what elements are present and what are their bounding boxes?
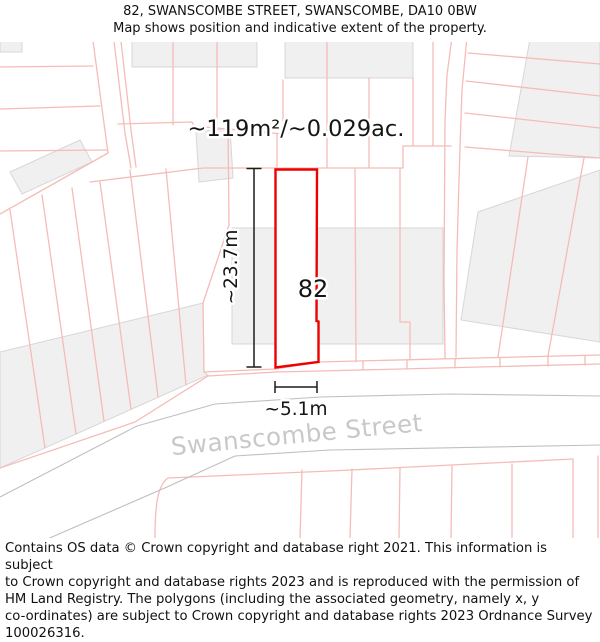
subject-plot-outline: [276, 170, 319, 368]
terrace-row-center: [232, 228, 443, 344]
page-title: 82, SWANSCOMBE STREET, SWANSCOMBE, DA10 …: [0, 0, 600, 20]
copyright-line: 100026316.: [5, 625, 597, 642]
copyright-line: HM Land Registry. The polygons (includin…: [5, 591, 597, 608]
width-dimension: [275, 381, 317, 393]
height-dimension-label: ~23.7m: [221, 230, 242, 305]
plot-number-label: 82: [298, 275, 329, 303]
copyright-line: to Crown copyright and database rights 2…: [5, 574, 597, 591]
terrace-block-ne: [509, 41, 600, 158]
width-dimension-label: ~5.1m: [265, 399, 328, 420]
map-canvas: ~119m²/~0.029ac. 82 ~23.7m ~5.1m Swansco…: [0, 41, 600, 538]
page-subtitle: Map shows position and indicative extent…: [0, 20, 600, 37]
area-label: ~119m²/~0.029ac.: [188, 116, 405, 142]
building-east: [461, 170, 600, 342]
copyright-notice: Contains OS data © Crown copyright and d…: [0, 538, 600, 642]
map-container: ~119m²/~0.029ac. 82 ~23.7m ~5.1m Swansco…: [0, 41, 600, 538]
map-header: 82, SWANSCOMBE STREET, SWANSCOMBE, DA10 …: [0, 0, 600, 42]
copyright-line: co-ordinates) are subject to Crown copyr…: [5, 608, 597, 625]
copyright-line: Contains OS data © Crown copyright and d…: [5, 540, 597, 574]
